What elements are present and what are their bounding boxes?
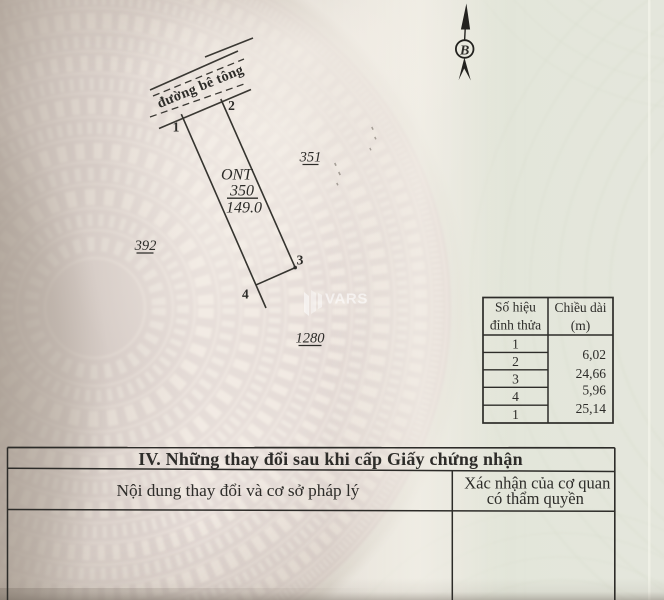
svg-text:Chiều dài: Chiều dài (554, 300, 606, 315)
svg-text:350: 350 (229, 183, 254, 200)
svg-text:351: 351 (299, 150, 322, 166)
svg-text:2: 2 (512, 354, 519, 369)
svg-text:1280: 1280 (296, 331, 326, 347)
svg-text:3: 3 (297, 253, 304, 268)
svg-text:1: 1 (512, 407, 519, 422)
svg-text:3: 3 (512, 371, 519, 386)
svg-text:1: 1 (512, 337, 519, 352)
svg-text:IV. Những thay đổi sau khi cấp: IV. Những thay đổi sau khi cấp Giấy chứn… (138, 449, 523, 469)
svg-text:có thẩm quyền: có thẩm quyền (487, 489, 584, 508)
svg-text:4: 4 (242, 287, 249, 302)
svg-text:149.0: 149.0 (226, 200, 262, 217)
svg-text:24,66: 24,66 (576, 366, 607, 381)
svg-text:B: B (459, 44, 469, 59)
svg-text:(m): (m) (571, 318, 591, 333)
svg-text:6,02: 6,02 (582, 347, 606, 362)
svg-text:Nội dung thay đổi và cơ sở phá: Nội dung thay đổi và cơ sở pháp lý (117, 481, 360, 500)
svg-text:2: 2 (228, 98, 235, 113)
svg-text:đỉnh thửa: đỉnh thửa (490, 318, 541, 333)
svg-text:25,14: 25,14 (576, 401, 607, 416)
svg-text:Số hiệu: Số hiệu (495, 300, 536, 315)
svg-text:5,96: 5,96 (582, 383, 606, 398)
svg-text:4: 4 (512, 389, 519, 404)
svg-text:ONT: ONT (221, 167, 253, 184)
svg-text:1: 1 (173, 120, 180, 135)
svg-text:VARS: VARS (325, 291, 368, 308)
svg-text:392: 392 (134, 238, 157, 254)
